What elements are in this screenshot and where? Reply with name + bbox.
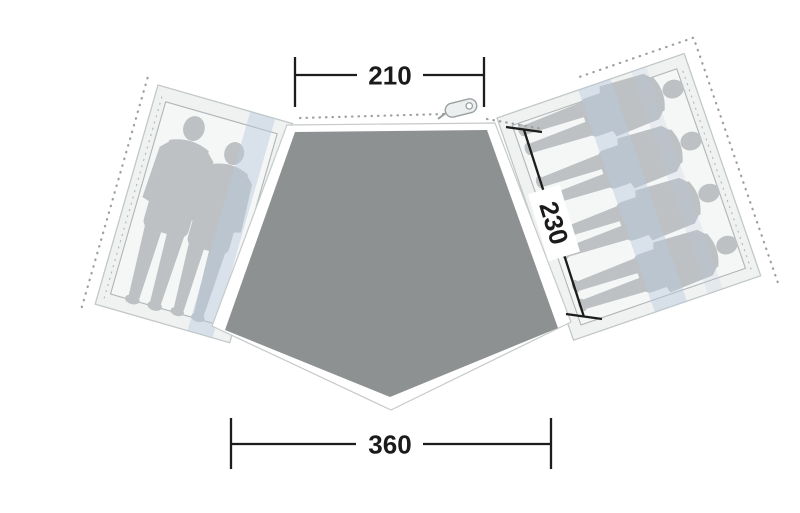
zipper-pull-icon <box>435 97 478 121</box>
dim-210-label: 210 <box>368 61 411 91</box>
zipper-teeth-dots-left <box>300 114 445 118</box>
dimension-door-width: 210 <box>295 57 484 107</box>
dimension-base-width: 360 <box>231 418 551 469</box>
zipper-pull-tag <box>444 97 478 118</box>
floorplan-svg: 210 230 360 <box>0 0 800 513</box>
dim-360-label: 360 <box>368 430 411 460</box>
zipper-pull-hole <box>465 102 473 110</box>
tent-floorplan-diagram: 210 230 360 <box>0 0 800 513</box>
